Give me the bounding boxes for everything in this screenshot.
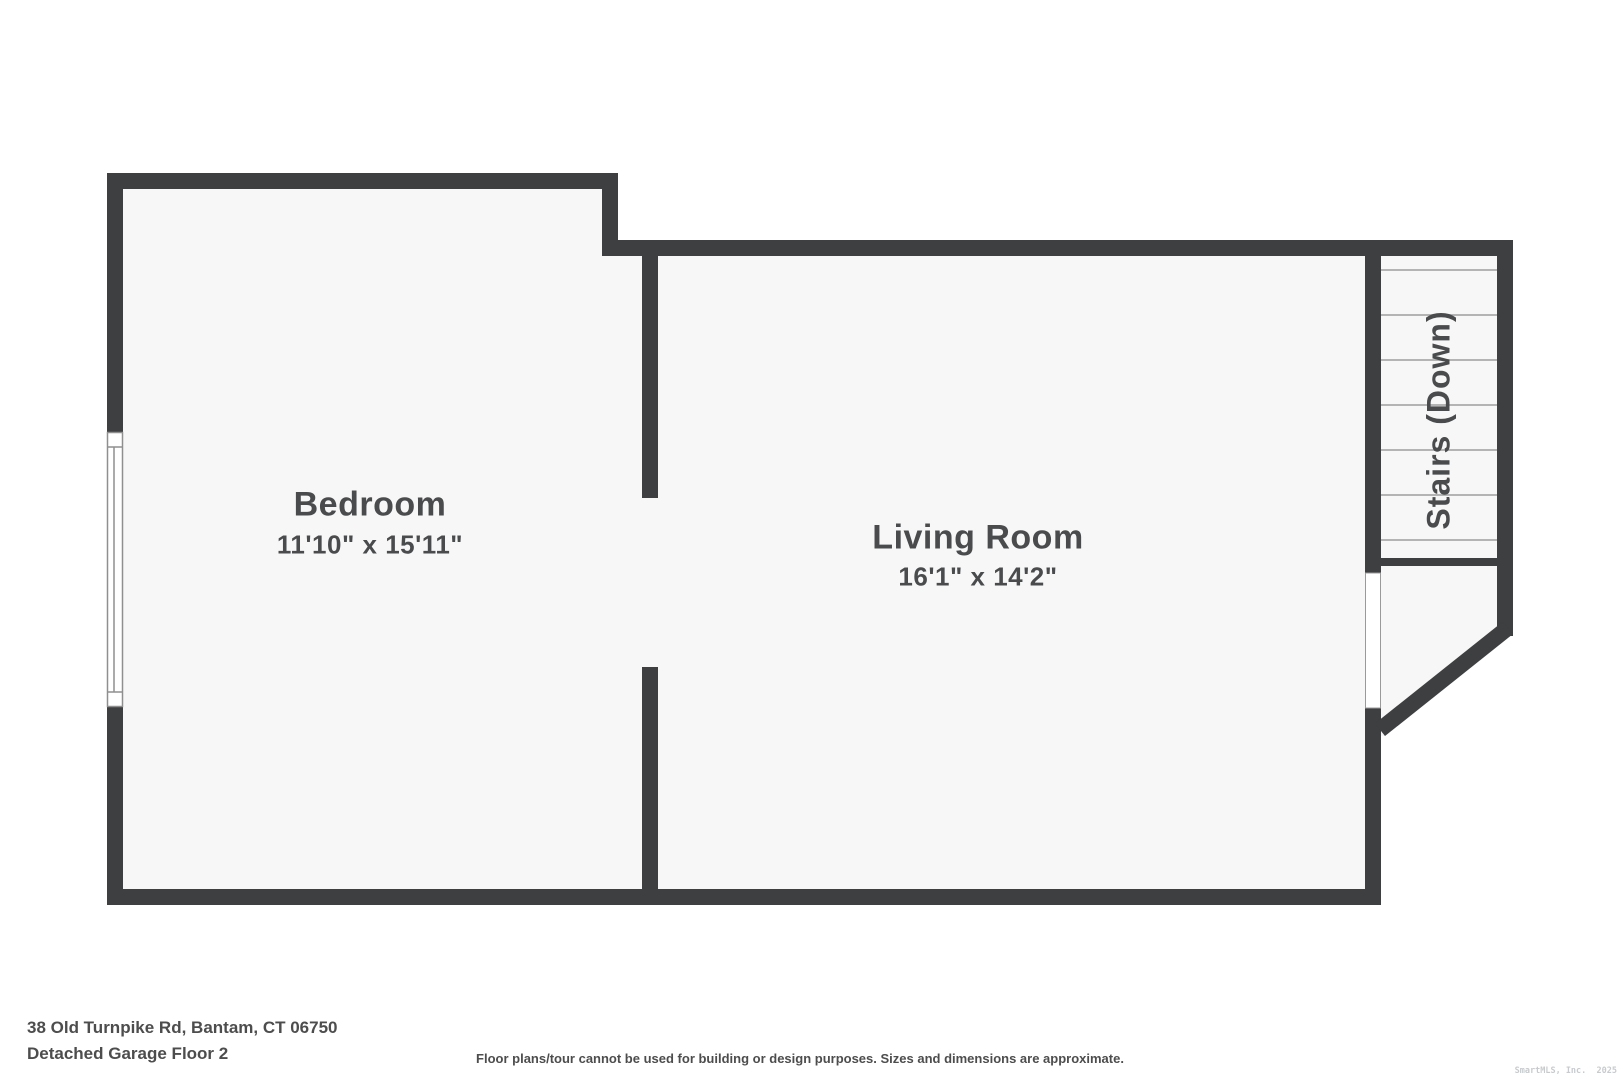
- stairs-down-label: Stairs (Down): [1421, 310, 1458, 529]
- wall-living-top: [602, 240, 1513, 256]
- wall-left-upper: [107, 173, 123, 432]
- wall-divider-stairs-lower: [1365, 708, 1381, 889]
- bedroom-label: Bedroom: [294, 486, 447, 525]
- floorplan-page: Bedroom 11'10" x 15'11" Living Room 16'1…: [0, 0, 1620, 1080]
- wall-left-lower: [107, 707, 123, 905]
- living-room-label: Living Room: [872, 519, 1083, 558]
- floorplan-drawing: [0, 0, 1620, 1080]
- wall-bedroom-top: [107, 173, 618, 189]
- wall-stairs-bottom: [1381, 558, 1497, 566]
- living-room-dimensions: 16'1" x 14'2": [898, 562, 1057, 593]
- bedroom-dimensions: 11'10" x 15'11": [277, 530, 463, 561]
- door-opening-stairs: [1366, 573, 1381, 708]
- wall-divider-bedroom-upper: [642, 256, 658, 498]
- wall-bottom: [107, 889, 1381, 905]
- wall-divider-stairs-upper: [1365, 256, 1381, 573]
- disclaimer-text: Floor plans/tour cannot be used for buil…: [476, 1051, 1124, 1066]
- floor-title: Detached Garage Floor 2: [27, 1044, 228, 1064]
- property-address: 38 Old Turnpike Rd, Bantam, CT 06750: [27, 1018, 338, 1038]
- window-frame: [108, 433, 123, 707]
- wall-outer-right: [1497, 240, 1513, 636]
- smartmls-watermark: SmartMLS, Inc. 2025: [1515, 1066, 1617, 1076]
- wall-divider-bedroom-lower: [642, 667, 658, 889]
- window-left: [108, 433, 123, 707]
